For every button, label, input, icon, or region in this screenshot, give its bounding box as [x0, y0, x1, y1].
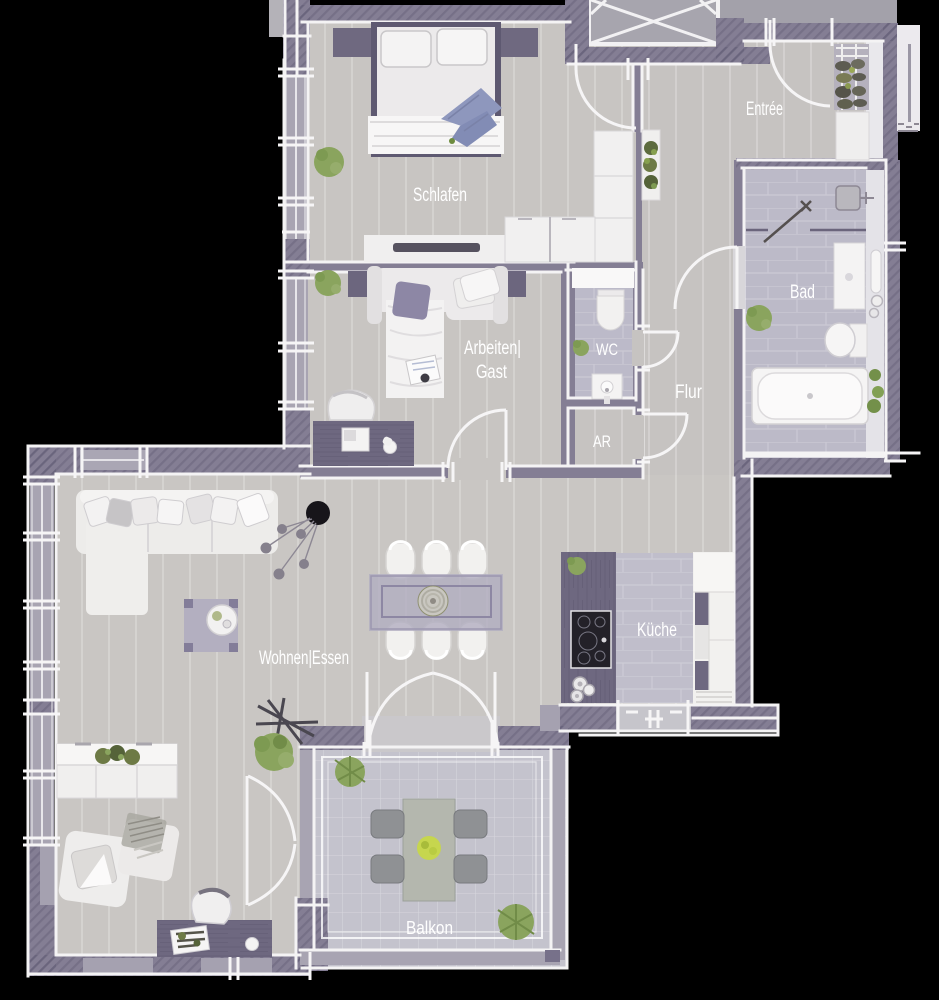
svg-text:Balkon: Balkon	[406, 918, 453, 938]
svg-text:Bad: Bad	[790, 282, 815, 303]
svg-text:Gast: Gast	[476, 362, 508, 383]
svg-text:Flur: Flur	[675, 382, 703, 403]
svg-text:Entrée: Entrée	[746, 99, 783, 120]
svg-text:Arbeiten|: Arbeiten|	[464, 338, 521, 359]
svg-text:Wohnen|Essen: Wohnen|Essen	[259, 648, 349, 669]
svg-text:Schlafen: Schlafen	[413, 185, 467, 206]
svg-text:AR: AR	[593, 432, 611, 451]
svg-text:Küche: Küche	[637, 620, 677, 641]
svg-text:WC: WC	[596, 340, 618, 359]
